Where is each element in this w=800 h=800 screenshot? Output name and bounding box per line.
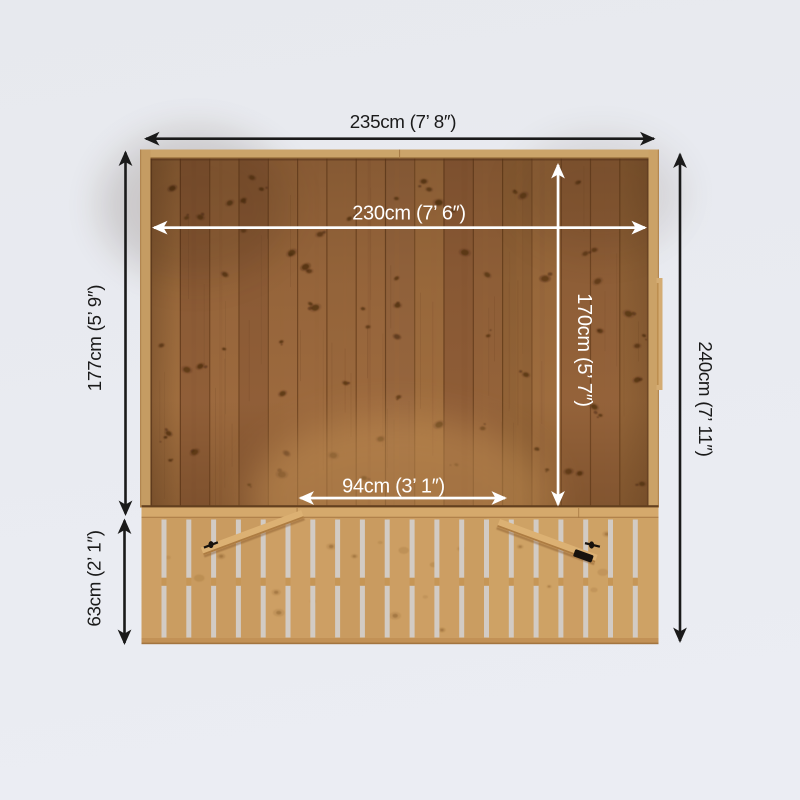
svg-text:230cm (7’ 6″): 230cm (7’ 6″) [352, 203, 466, 225]
svg-text:94cm (3’ 1″): 94cm (3’ 1″) [342, 476, 445, 498]
svg-text:63cm (2’ 1″): 63cm (2’ 1″) [84, 530, 105, 626]
svg-text:177cm (5’ 9″): 177cm (5’ 9″) [84, 285, 105, 391]
svg-text:235cm (7’ 8″): 235cm (7’ 8″) [350, 111, 456, 132]
svg-text:240cm (7’ 11″): 240cm (7’ 11″) [695, 341, 716, 456]
svg-text:170cm (5’ 7″): 170cm (5’ 7″) [573, 293, 595, 407]
